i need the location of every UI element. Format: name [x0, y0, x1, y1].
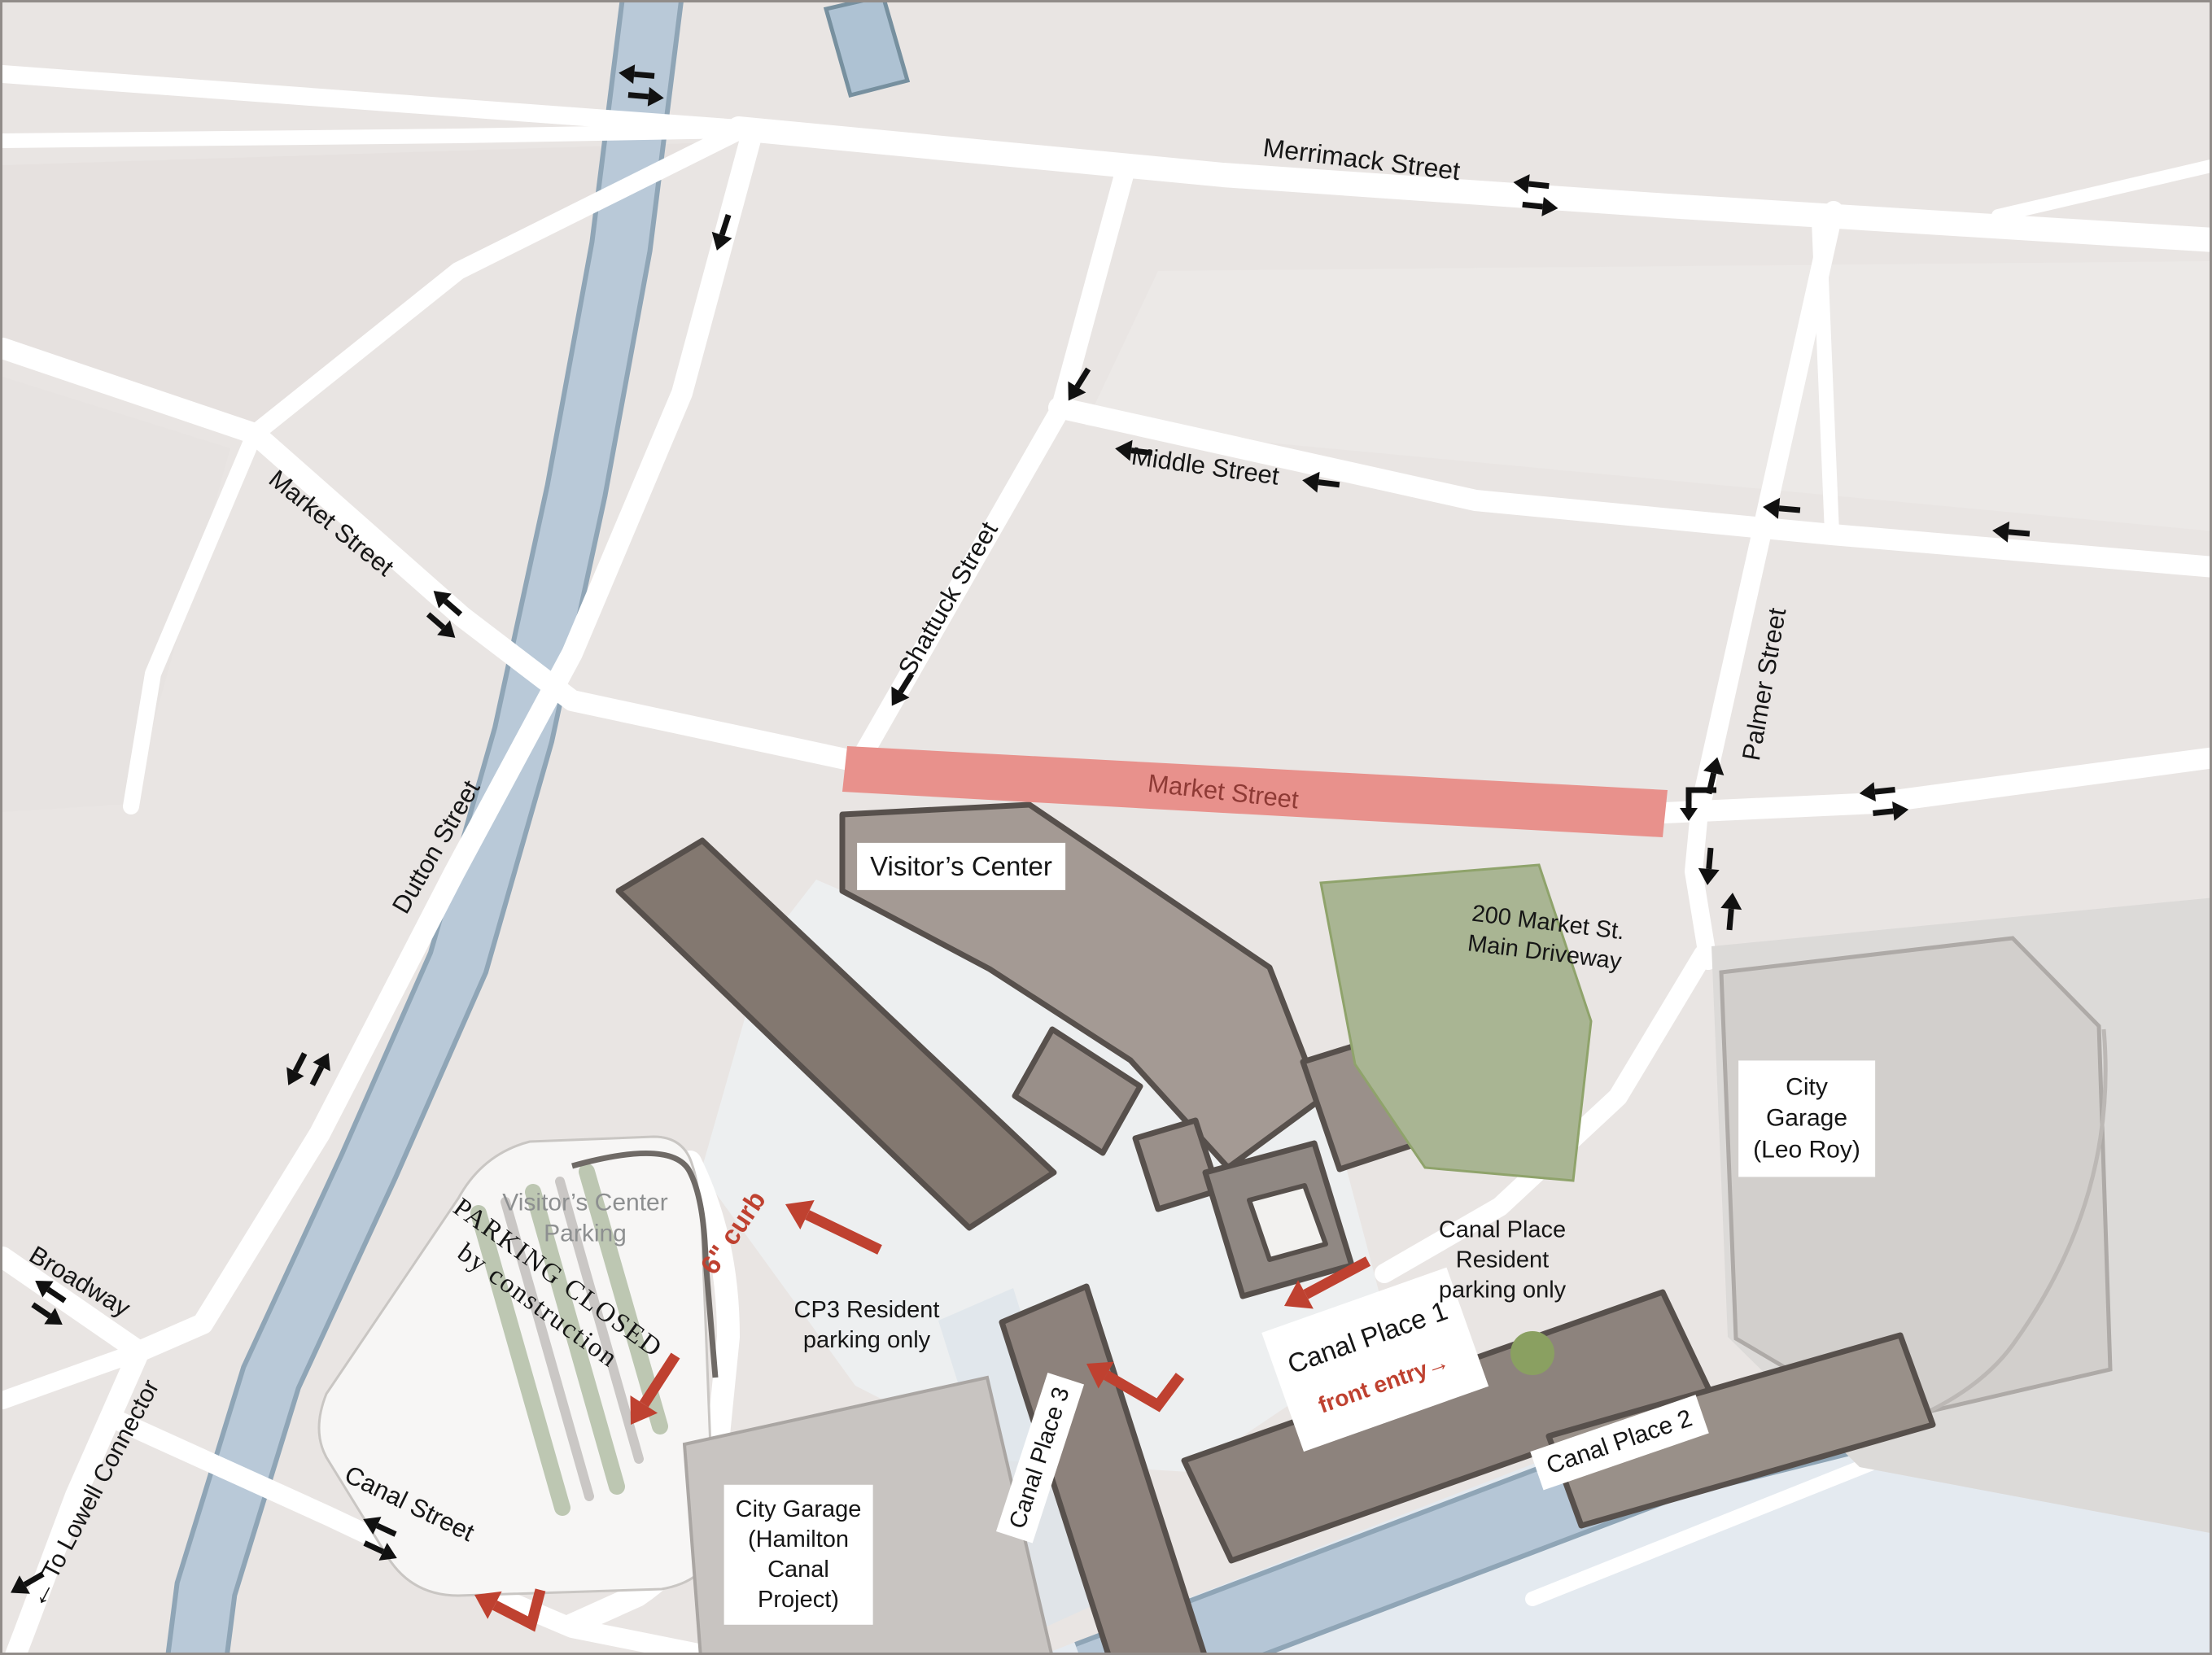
street	[2, 131, 735, 141]
map-graphics	[2, 2, 2212, 1655]
tree-icon	[1510, 1331, 1554, 1375]
city-garage-leo-roy-building	[1721, 938, 2110, 1423]
parking-map: Merrimack Street Middle Street Market St…	[0, 0, 2212, 1655]
